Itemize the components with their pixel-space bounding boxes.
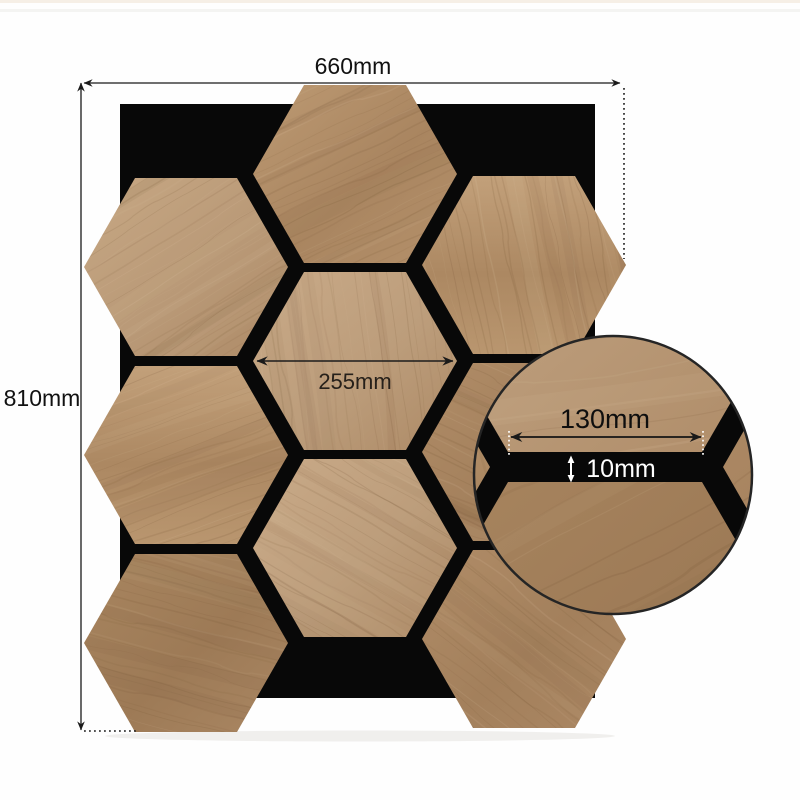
- svg-text:255mm: 255mm: [318, 369, 391, 394]
- svg-text:810mm: 810mm: [4, 385, 81, 411]
- svg-text:660mm: 660mm: [315, 53, 392, 79]
- svg-text:10mm: 10mm: [586, 455, 655, 483]
- svg-text:130mm: 130mm: [560, 404, 650, 434]
